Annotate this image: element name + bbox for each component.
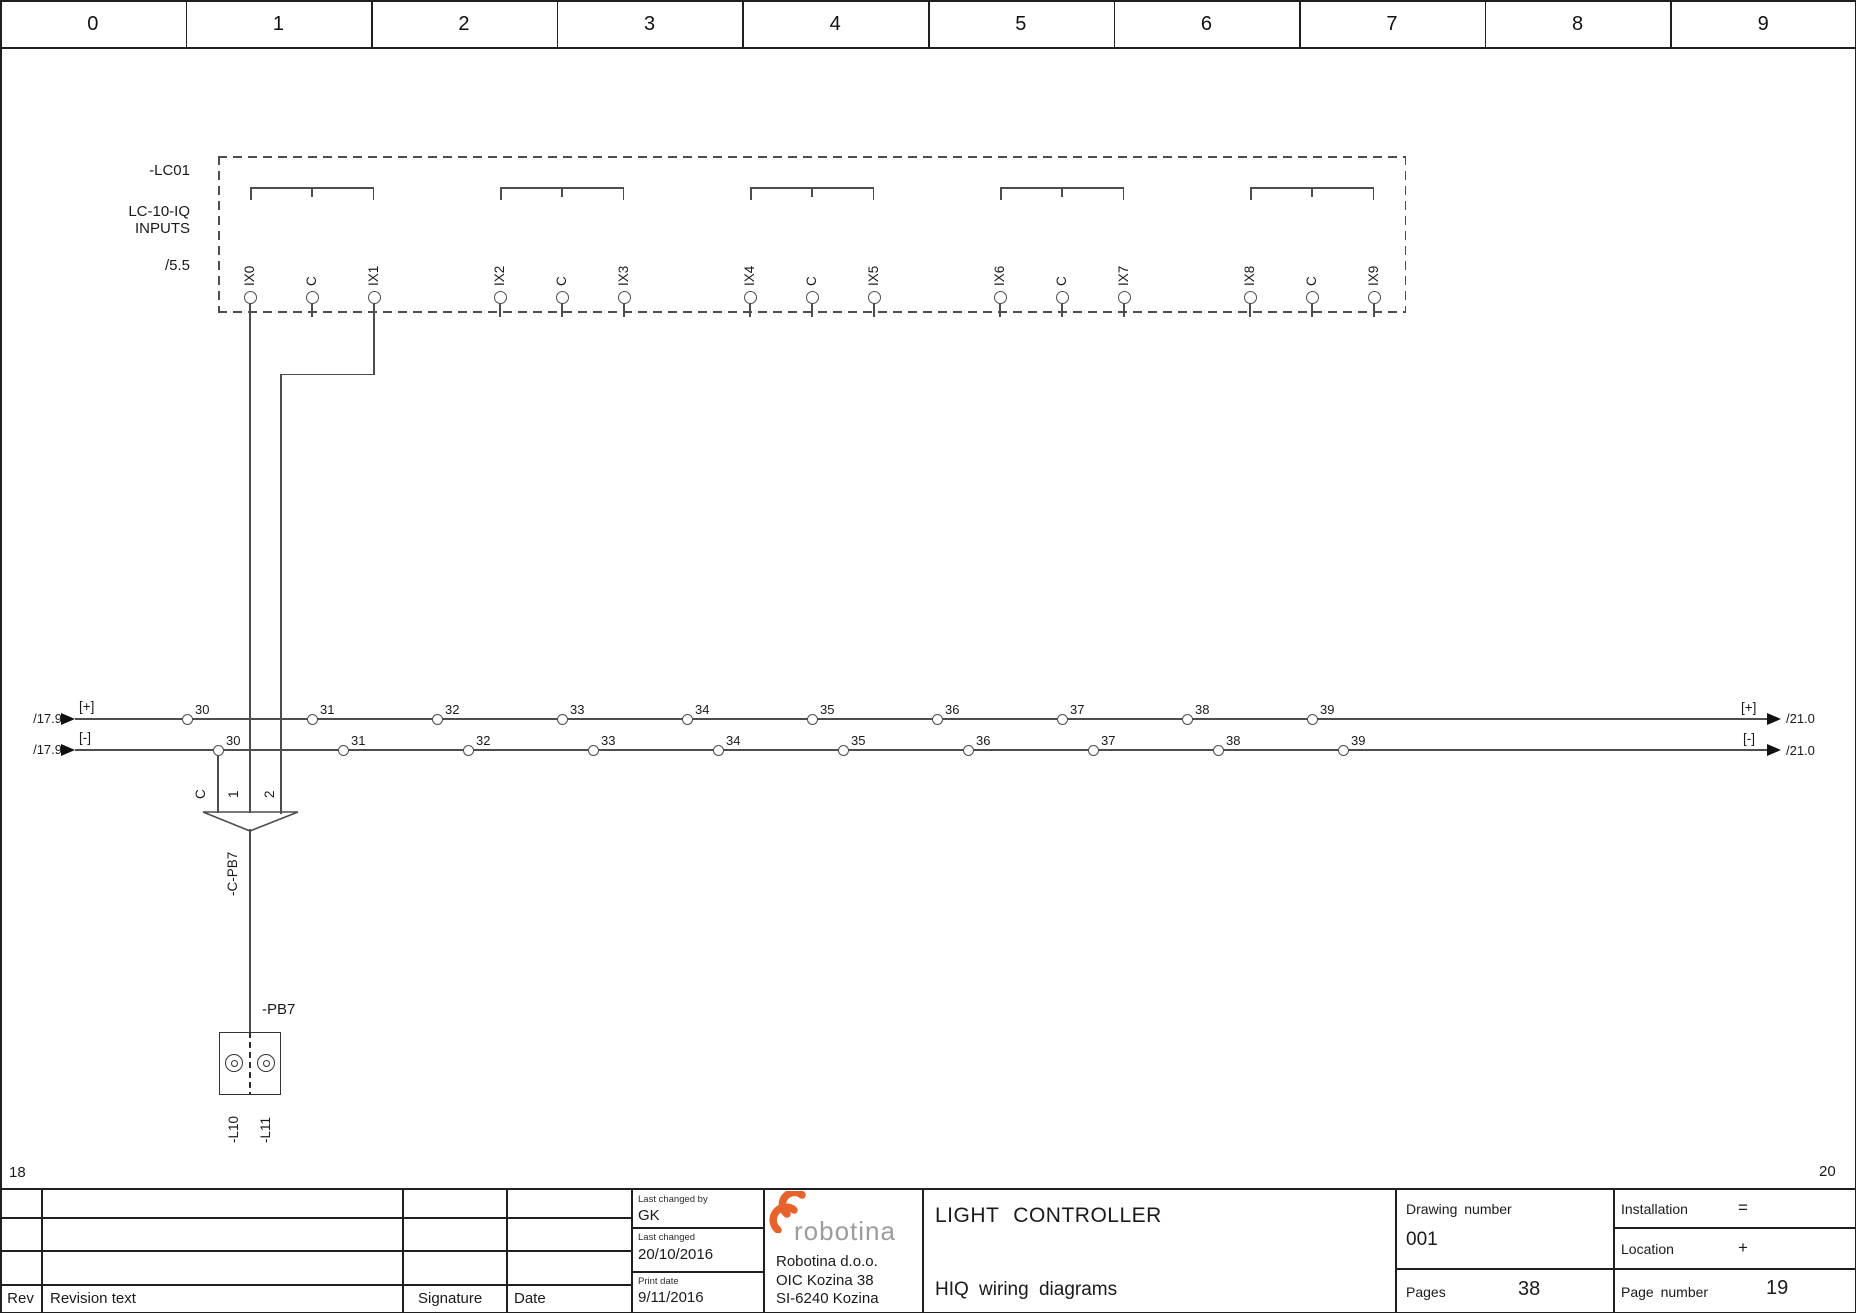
bus-minus-polarity-left: [-]: [79, 730, 91, 745]
module-box-right: [1405, 156, 1407, 312]
bus-terminal-circle: [307, 714, 318, 725]
terminal-stub: [623, 303, 625, 317]
bus-terminal-circle: [338, 745, 349, 756]
bus-terminal-number: 30: [195, 702, 209, 717]
company-street: OIC Kozina 38: [776, 1272, 874, 1289]
bus-terminal-number: 37: [1101, 733, 1115, 748]
ruler-column: 4: [742, 0, 928, 47]
bus-terminal-circle: [182, 714, 193, 725]
bus-terminal-number: 38: [1195, 702, 1209, 717]
panel-divider: [1395, 1268, 1856, 1270]
page-number-value: 19: [1766, 1277, 1788, 1300]
group-bracket-tick: [811, 187, 813, 197]
group-bracket-tick: [1061, 187, 1063, 197]
wire-label-1: 1: [225, 781, 243, 798]
device-lamp-right-inner: [263, 1060, 270, 1067]
device-terminal-l11: -L11: [257, 1099, 275, 1143]
bus-terminal-number: 36: [945, 702, 959, 717]
terminal-label: IX3: [615, 210, 633, 286]
bus-terminal-number: 30: [226, 733, 240, 748]
bus-minus-arrow-right: [1767, 744, 1781, 756]
terminal-circle: [368, 291, 381, 304]
bus-terminal-circle: [1182, 714, 1193, 725]
terminal-label: C: [803, 210, 821, 286]
ruler-column: 0: [0, 0, 186, 47]
document-subtitle: HIQ wiring diagrams: [935, 1279, 1117, 1301]
group-bracket-tick: [873, 187, 875, 200]
group-bracket-tick: [250, 187, 252, 200]
company-name: Robotina d.o.o.: [776, 1253, 878, 1270]
wire-ix0: [249, 303, 251, 813]
bus-terminal-circle: [932, 714, 943, 725]
terminal-label: C: [1053, 210, 1071, 286]
ruler-divider: [928, 0, 930, 47]
bus-terminal-circle: [1307, 714, 1318, 725]
terminal-label: IX2: [491, 210, 509, 286]
next-sheet-number: 20: [1819, 1163, 1836, 1180]
panel-divider: [1613, 1227, 1856, 1229]
bus-plus-ref-left: /17.9: [20, 711, 62, 726]
group-bracket-tick: [1250, 187, 1252, 200]
bus-terminal-circle: [1088, 745, 1099, 756]
bus-terminal-number: 32: [445, 702, 459, 717]
rev-header: Rev: [0, 1290, 41, 1307]
location-value: +: [1738, 1238, 1748, 1258]
rev-table-row-line: [0, 1217, 631, 1219]
terminal-circle: [1368, 291, 1381, 304]
ruler-column: 3: [557, 0, 743, 47]
drawing-number-label: Drawing number: [1406, 1201, 1512, 1217]
bus-terminal-number: 39: [1351, 733, 1365, 748]
robotina-logo-text: robotina: [794, 1216, 896, 1247]
panel-line: [763, 1188, 765, 1312]
group-bracket-tick: [311, 187, 313, 197]
meta-divider: [631, 1227, 763, 1229]
installation-value: =: [1738, 1198, 1748, 1218]
terminal-label: IX6: [991, 210, 1009, 286]
module-page-ref: /5.5: [90, 257, 190, 274]
bus-terminal-circle: [682, 714, 693, 725]
group-bracket-tick: [1000, 187, 1002, 200]
ruler-column: 2: [371, 0, 557, 47]
terminal-stub: [1373, 303, 1375, 317]
module-subtype: INPUTS: [90, 220, 190, 237]
terminal-stub: [1123, 303, 1125, 317]
bus-terminal-number: 33: [570, 702, 584, 717]
bus-terminal-circle: [588, 745, 599, 756]
bus-terminal-circle: [1338, 745, 1349, 756]
terminal-label: C: [303, 210, 321, 286]
terminal-circle: [1306, 291, 1319, 304]
terminal-label: IX9: [1365, 210, 1383, 286]
bus-minus-line: [75, 749, 1768, 751]
rev-table-row-line: [0, 1284, 631, 1286]
bus-terminal-number: 39: [1320, 702, 1334, 717]
terminal-circle: [556, 291, 569, 304]
bus-minus-arrow-left: [61, 744, 75, 756]
terminal-label: IX0: [241, 210, 259, 286]
bus-terminal-number: 32: [476, 733, 490, 748]
bus-plus-arrow-left: [61, 713, 75, 725]
bus-terminal-circle: [838, 745, 849, 756]
bus-terminal-number: 37: [1070, 702, 1084, 717]
bus-plus-polarity-right: [+]: [1741, 700, 1756, 715]
terminal-stub: [311, 303, 313, 317]
wire-ix1-drop: [373, 303, 375, 375]
group-bracket-tick: [373, 187, 375, 200]
bus-terminal-number: 38: [1226, 733, 1240, 748]
group-bracket-tick: [1373, 187, 1375, 200]
company-city: SI-6240 Kozina: [776, 1290, 879, 1307]
ruler-divider: [371, 0, 373, 47]
group-bracket-tick: [1311, 187, 1313, 197]
group-bracket-tick: [500, 187, 502, 200]
terminal-stub: [1311, 303, 1313, 317]
ruler-divider: [186, 0, 188, 47]
bus-terminal-number: 36: [976, 733, 990, 748]
terminal-label: IX5: [865, 210, 883, 286]
bus-terminal-number: 34: [695, 702, 709, 717]
bus-plus-line: [75, 718, 1768, 720]
ruler-column: 7: [1299, 0, 1485, 47]
module-box-left: [218, 156, 220, 312]
terminal-label: IX8: [1241, 210, 1259, 286]
pages-label: Pages: [1406, 1284, 1446, 1300]
bus-terminal-circle: [1057, 714, 1068, 725]
ruler-divider: [742, 0, 744, 47]
ruler-divider: [1670, 0, 1672, 47]
group-bracket-tick: [1123, 187, 1125, 200]
terminal-label: C: [553, 210, 571, 286]
wire-cable-trunk: [249, 829, 251, 1033]
ruler-column: 9: [1670, 0, 1856, 47]
panel-line: [922, 1188, 924, 1312]
bus-terminal-circle: [557, 714, 568, 725]
pages-value: 38: [1518, 1278, 1540, 1301]
wire-ix1: [280, 374, 282, 814]
bus-terminal-circle: [463, 745, 474, 756]
ruler-column: 5: [928, 0, 1114, 47]
ruler-divider: [557, 0, 559, 47]
bus-plus-ref-right: /21.0: [1786, 711, 1815, 726]
terminal-circle: [994, 291, 1007, 304]
group-bracket-tick: [750, 187, 752, 200]
page-border-left: [0, 0, 2, 1313]
terminal-stub: [1249, 303, 1251, 317]
ruler-column: 8: [1485, 0, 1671, 47]
module-type: LC-10-IQ: [90, 203, 190, 220]
terminal-circle: [868, 291, 881, 304]
terminal-label: IX1: [365, 210, 383, 286]
meta-divider: [631, 1271, 763, 1273]
bus-terminal-number: 34: [726, 733, 740, 748]
cable-tag: -C-PB7: [224, 840, 242, 896]
print-date-value: 9/11/2016: [638, 1289, 704, 1306]
bus-plus-polarity-left: [+]: [79, 699, 94, 714]
bus-terminal-circle: [1213, 745, 1224, 756]
installation-label: Installation: [1621, 1201, 1688, 1217]
terminal-circle: [494, 291, 507, 304]
terminal-stub: [873, 303, 875, 317]
bus-terminal-circle: [432, 714, 443, 725]
last-changed-value: 20/10/2016: [638, 1246, 713, 1263]
terminal-label: C: [1303, 210, 1321, 286]
ruler-divider: [1485, 0, 1487, 47]
group-bracket-tick: [561, 187, 563, 197]
wire-common: [217, 755, 219, 813]
module-box-top: [218, 156, 1406, 158]
prev-sheet-number: 18: [9, 1164, 26, 1181]
terminal-circle: [806, 291, 819, 304]
bus-terminal-circle: [963, 745, 974, 756]
terminal-stub: [1061, 303, 1063, 317]
signature-header: Signature: [418, 1290, 482, 1307]
drawing-number-value: 001: [1406, 1229, 1438, 1251]
titleblock-top-line: [0, 1188, 1856, 1190]
group-bracket-tick: [623, 187, 625, 200]
device-terminal-l10: -L10: [225, 1099, 243, 1143]
terminal-label: IX7: [1115, 210, 1133, 286]
bus-terminal-number: 35: [820, 702, 834, 717]
terminal-stub: [561, 303, 563, 317]
terminal-stub: [499, 303, 501, 317]
wire-ix1-jog: [280, 374, 375, 376]
bus-minus-ref-right: /21.0: [1786, 743, 1815, 758]
bus-plus-arrow-right: [1767, 713, 1781, 725]
schematic-sheet: 0123456789 -LC01 LC-10-IQ INPUTS /5.5 IX…: [0, 0, 1856, 1313]
module-tag: -LC01: [90, 162, 190, 179]
terminal-stub: [811, 303, 813, 317]
terminal-circle: [306, 291, 319, 304]
terminal-circle: [244, 291, 257, 304]
bus-terminal-circle: [713, 745, 724, 756]
rev-table-line: [631, 1188, 633, 1312]
bus-terminal-number: 31: [320, 702, 334, 717]
device-lamp-left-inner: [231, 1060, 238, 1067]
revision-text-header: Revision text: [50, 1290, 136, 1307]
wire-label-c: C: [192, 779, 210, 799]
ruler-divider: [1114, 0, 1116, 47]
terminal-circle: [618, 291, 631, 304]
panel-line: [1395, 1188, 1397, 1312]
terminal-circle: [1244, 291, 1257, 304]
ruler-column: 6: [1114, 0, 1300, 47]
bus-terminal-circle: [807, 714, 818, 725]
rev-table-row-line: [0, 1250, 631, 1252]
terminal-label: IX4: [741, 210, 759, 286]
document-title: LIGHT CONTROLLER: [935, 1204, 1162, 1228]
ruler-divider: [1299, 0, 1301, 47]
last-changed-by-label: Last changed by: [638, 1194, 708, 1205]
bus-terminal-circle: [213, 745, 224, 756]
ruler-column: 1: [186, 0, 372, 47]
page-number-label: Page number: [1621, 1284, 1708, 1300]
bus-terminal-number: 31: [351, 733, 365, 748]
bus-minus-ref-left: /17.9: [20, 742, 62, 757]
location-label: Location: [1621, 1241, 1674, 1257]
last-changed-label: Last changed: [638, 1232, 695, 1243]
terminal-stub: [999, 303, 1001, 317]
bus-minus-polarity-right: [-]: [1743, 731, 1755, 746]
date-header: Date: [514, 1290, 546, 1307]
terminal-circle: [1118, 291, 1131, 304]
wire-label-2: 2: [261, 781, 279, 798]
last-changed-by-value: GK: [638, 1207, 660, 1224]
ruler-bottom-line: [0, 47, 1856, 49]
device-center-dash: [249, 1032, 251, 1095]
terminal-circle: [744, 291, 757, 304]
device-tag: -PB7: [262, 1001, 295, 1018]
bus-terminal-number: 33: [601, 733, 615, 748]
panel-line: [1613, 1188, 1615, 1312]
terminal-circle: [1056, 291, 1069, 304]
print-date-label: Print date: [638, 1276, 679, 1287]
terminal-stub: [749, 303, 751, 317]
bus-terminal-number: 35: [851, 733, 865, 748]
